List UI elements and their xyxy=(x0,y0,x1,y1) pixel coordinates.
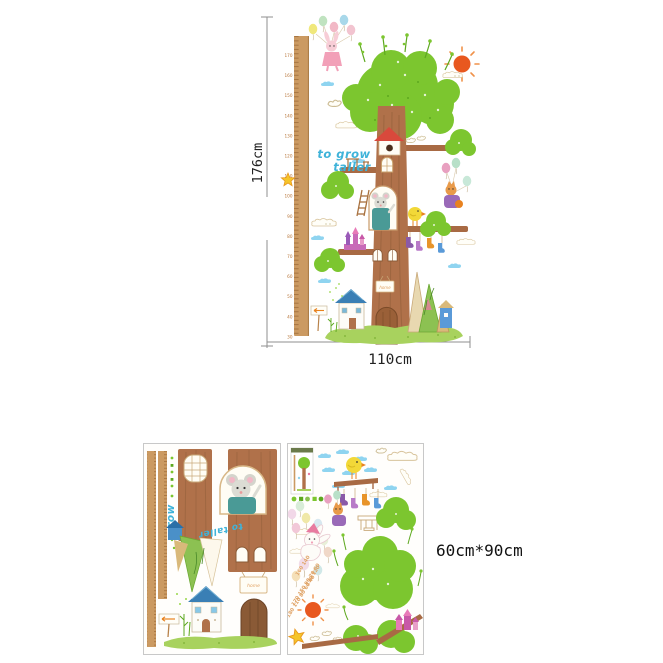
sheet-sun xyxy=(298,595,339,625)
mini-icon-row xyxy=(292,497,324,502)
ruler-label: 100 xyxy=(285,194,293,199)
sheet-mouse-window xyxy=(220,466,266,514)
white-house xyxy=(335,289,367,329)
ruler-label: 160 xyxy=(285,73,293,78)
slogan-line2: taller xyxy=(333,160,371,174)
sheet-grass xyxy=(164,636,277,649)
ruler-label: 170 xyxy=(285,53,293,58)
ruler-label: 140 xyxy=(285,113,293,118)
sheet-size-label: 60cm*90cm xyxy=(436,541,523,560)
mini-preview-thumb xyxy=(291,448,313,494)
ruler-label: 30 xyxy=(287,334,293,339)
main-product-image: 176cm 110cm 1701601501401301201101009080… xyxy=(0,0,663,432)
slogan-line1: to grow xyxy=(317,147,370,161)
small-blue-house xyxy=(438,300,454,328)
sheet-foliage xyxy=(340,497,416,654)
height-dimension-label: 176cm xyxy=(250,143,266,184)
star-icon xyxy=(281,173,294,186)
product-image-page: 176cm 110cm 1701601501401301201101009080… xyxy=(0,0,663,663)
growth-ruler: 17016015014013012011010090807060504030 xyxy=(285,36,310,339)
ruler-label: 60 xyxy=(287,274,293,279)
sheet-boots xyxy=(340,488,381,508)
ruler-label: 90 xyxy=(287,214,293,219)
sheet-door xyxy=(241,599,267,638)
ruler-labels: 17016015014013012011010090807060504030 xyxy=(285,53,293,339)
width-dimension-label: 110cm xyxy=(368,352,412,368)
sheet-signpost xyxy=(159,614,179,637)
sheet-image-right: 160 140 130 120 170 150 90 70 50 180 110… xyxy=(287,443,424,655)
flying-bird-icon xyxy=(328,100,341,106)
mouse-in-window xyxy=(369,186,397,230)
tree-window-upper xyxy=(382,157,393,172)
signpost xyxy=(311,306,327,331)
ruler-label: 80 xyxy=(287,234,293,239)
rabbit-with-balloons xyxy=(309,15,356,71)
ruler-label: 70 xyxy=(287,254,293,259)
ruler-label: 40 xyxy=(287,314,293,319)
castle-silhouette xyxy=(344,227,366,250)
ruler-label: 150 xyxy=(285,93,293,98)
sheet-star-icon xyxy=(287,627,306,645)
sheet-sign-text: home xyxy=(247,583,260,589)
sheet-castle xyxy=(395,609,419,630)
trunk-sign-text: home xyxy=(379,285,391,290)
ladder xyxy=(357,190,369,216)
cat-with-balloons xyxy=(442,158,472,208)
sheet-image-left: grow to taller home xyxy=(143,443,281,655)
ruler-label: 50 xyxy=(287,294,293,299)
sheet-sign: home xyxy=(240,572,267,593)
ruler-label: 120 xyxy=(285,154,293,159)
sheet-house xyxy=(188,586,224,632)
ruler-label: 130 xyxy=(285,133,293,138)
